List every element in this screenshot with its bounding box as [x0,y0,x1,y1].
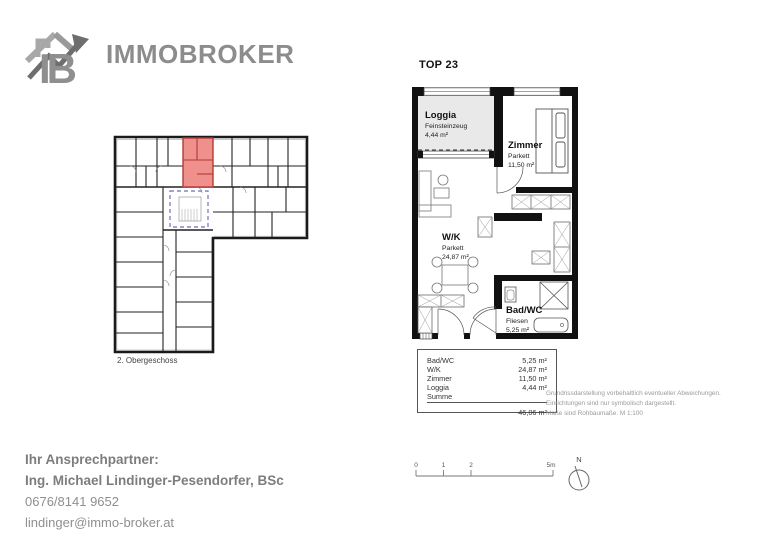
row-value: 24,87 m² [518,365,547,374]
disclaimer-line: Einrichtungen sind nur symbolisch darges… [546,399,766,409]
row-label: Bad/WC [427,356,454,365]
contact-phone: 0676/8141 9652 [25,494,284,509]
scale-tick-5m: 5m [546,462,555,469]
unit-floorplan: Loggia Feinsteinzeug 4,44 m² Zimmer Park… [412,87,578,343]
table-row: Bad/WC 5,25 m² [427,356,547,365]
contact-email: lindinger@immo-broker.at [25,515,284,530]
overview-floor-label: 2. Obergeschoss [117,356,177,365]
room-area-loggia: 4,44 m² [425,132,449,139]
room-area-zimmer: 11,50 m² [508,162,535,169]
room-name-zimmer: Zimmer [508,140,543,151]
immobroker-logo-icon: IB [20,14,106,92]
row-label: W/K [427,365,441,374]
room-floor-loggia: Feinsteinzeug [425,123,468,130]
total-value: 46,06 m² [518,408,547,417]
kitchen-counter [418,295,464,333]
room-name-badwc: Bad/WC [506,305,543,316]
scale-tick-2: 2 [469,462,473,469]
contact-heading: Ihr Ansprechpartner: [25,452,284,467]
row-value: 5,25 m² [522,356,547,365]
room-name-wk: W/K [442,232,461,243]
room-floor-wk: Parkett [442,245,464,252]
sofa-set [419,171,451,217]
room-area-wk: 24,87 m² [442,254,470,261]
contact-block: Ihr Ansprechpartner: Ing. Michael Lindin… [25,452,284,536]
compass-icon: N [558,453,596,497]
table-row: W/K 24,87 m² [427,365,547,374]
wardrobes [478,195,570,272]
unit-title: TOP 23 [419,59,458,71]
logo-monogram: IB [39,45,76,92]
row-value: 4,44 m² [522,383,547,392]
compass-north-label: N [576,455,581,464]
row-label: Loggia [427,383,449,392]
room-name-loggia: Loggia [425,110,457,121]
scale-tick-1: 1 [442,462,446,469]
room-area-badwc: 5,25 m² [506,327,530,334]
disclaimer-line: Maße sind Rohbaumaße. M 1:100 [546,409,766,419]
room-floor-zimmer: Parkett [508,153,530,160]
area-table: Bad/WC 5,25 m² W/K 24,87 m² Zimmer 11,50… [417,349,557,413]
table-row: Zimmer 11,50 m² [427,374,547,383]
building-overview-plan [100,130,326,356]
scale-tick-0: 0 [414,462,418,469]
expose-page: IB IMMOBROKER [0,0,770,545]
sum-label: Summe [427,392,452,401]
disclaimer-line: Grundrissdarstellung vorbehaltlich event… [546,389,766,399]
sum-label-row: Summe [427,392,547,403]
row-value: 11,50 m² [519,374,547,383]
total-row: 46,06 m² [427,408,547,417]
scale-bar: 0 1 2 5m [413,459,563,485]
dining-set [432,257,478,293]
table-row: Loggia 4,44 m² [427,383,547,392]
contact-name: Ing. Michael Lindinger-Pesendorfer, BSc [25,473,284,488]
row-label: Zimmer [427,374,452,383]
disclaimer: Grundrissdarstellung vorbehaltlich event… [546,389,766,419]
highlighted-unit [183,138,213,187]
brand-name: IMMOBROKER [106,39,294,70]
room-floor-badwc: Fliesen [506,318,528,325]
